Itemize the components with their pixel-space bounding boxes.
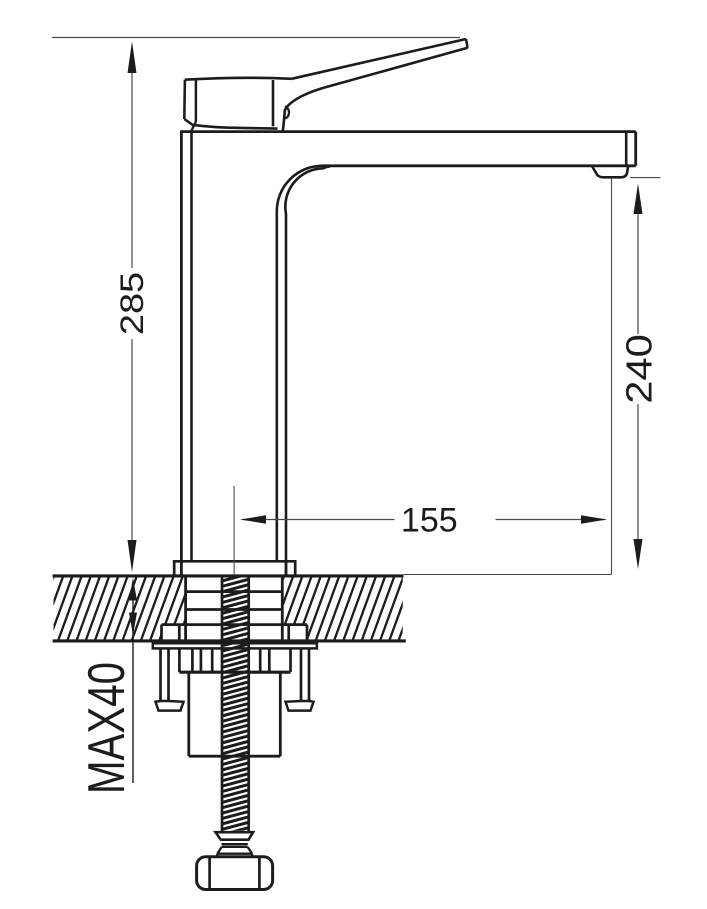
svg-text:240: 240: [620, 334, 660, 404]
svg-text:155: 155: [401, 501, 458, 539]
svg-text:MAX40: MAX40: [77, 662, 135, 794]
svg-text:285: 285: [115, 272, 151, 335]
